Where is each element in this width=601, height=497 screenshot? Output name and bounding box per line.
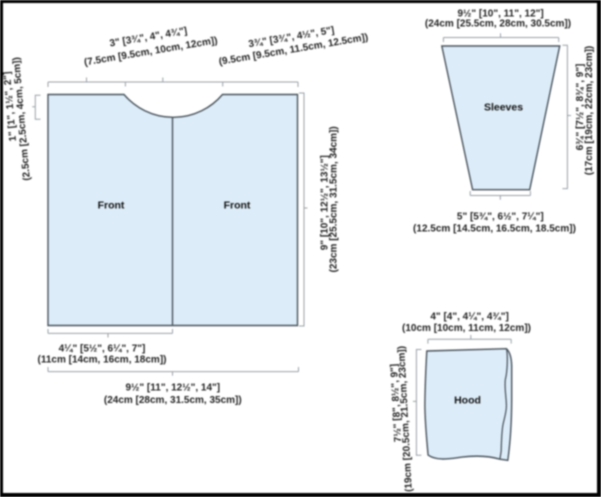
svg-text:5" [5¾", 6½", 7¼"]: 5" [5¾", 6½", 7¼"] xyxy=(457,212,544,223)
svg-text:Front: Front xyxy=(224,200,251,212)
svg-text:(17cm [19cm, 22cm, 23cm]): (17cm [19cm, 22cm, 23cm]) xyxy=(584,46,595,176)
svg-text:4" [4", 4¼", 4¾"]: 4" [4", 4¼", 4¾"] xyxy=(430,312,508,323)
svg-text:(24cm [28cm, 31.5cm, 35cm]): (24cm [28cm, 31.5cm, 35cm]) xyxy=(104,395,242,406)
svg-text:Front: Front xyxy=(98,200,125,212)
svg-text:(10cm [10cm, 11cm, 12cm]): (10cm [10cm, 11cm, 12cm]) xyxy=(402,323,531,334)
svg-text:Sleeves: Sleeves xyxy=(484,101,523,113)
svg-text:Hood: Hood xyxy=(454,395,481,407)
svg-text:4¼" [5½", 6¼", 7"]: 4¼" [5½", 6¼", 7"] xyxy=(59,344,146,355)
svg-text:9½" [11", 12½", 14"]: 9½" [11", 12½", 14"] xyxy=(126,383,221,394)
svg-text:(12.5cm [14.5cm, 16.5cm, 18.5c: (12.5cm [14.5cm, 16.5cm, 18.5cm]) xyxy=(413,224,576,235)
svg-text:(23cm [25.5cm, 31.5cm, 34cm]): (23cm [25.5cm, 31.5cm, 34cm]) xyxy=(328,126,339,272)
svg-text:(24cm [25.5cm, 28cm, 30.5cm]): (24cm [25.5cm, 28cm, 30.5cm]) xyxy=(425,18,571,29)
svg-text:(11cm [14cm, 16cm, 18cm]): (11cm [14cm, 16cm, 18cm]) xyxy=(38,355,167,366)
